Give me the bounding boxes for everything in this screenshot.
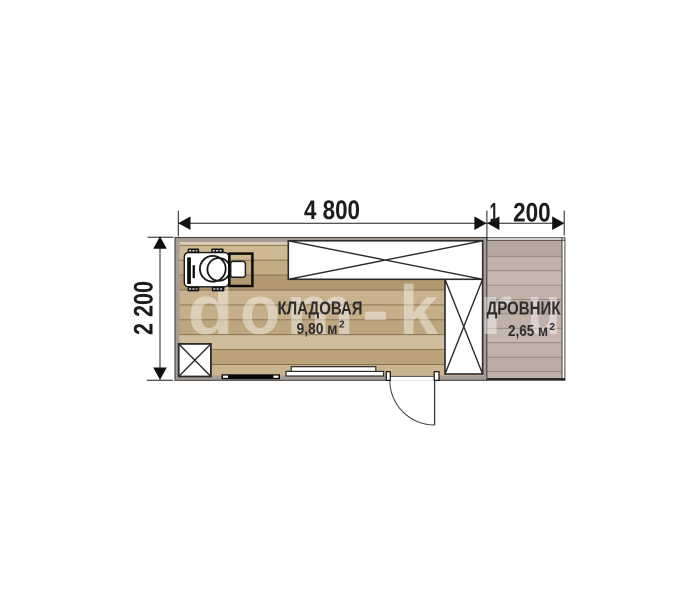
svg-text:-: - bbox=[362, 271, 389, 349]
svg-text:k: k bbox=[399, 271, 438, 349]
svg-text:o: o bbox=[240, 271, 280, 349]
svg-text:КЛАДОВАЯ: КЛАДОВАЯ bbox=[278, 297, 363, 318]
svg-text:ДРОВНИК: ДРОВНИК bbox=[487, 299, 562, 319]
svg-text:200: 200 bbox=[513, 197, 551, 227]
svg-text:1: 1 bbox=[490, 197, 499, 227]
svg-text:2: 2 bbox=[339, 320, 345, 331]
svg-text:2 200: 2 200 bbox=[129, 281, 159, 335]
svg-text:2: 2 bbox=[550, 322, 556, 333]
svg-text:4 800: 4 800 bbox=[304, 195, 360, 225]
svg-text:9,80 м: 9,80 м bbox=[297, 321, 338, 338]
svg-text:2,65 м: 2,65 м bbox=[508, 323, 548, 340]
